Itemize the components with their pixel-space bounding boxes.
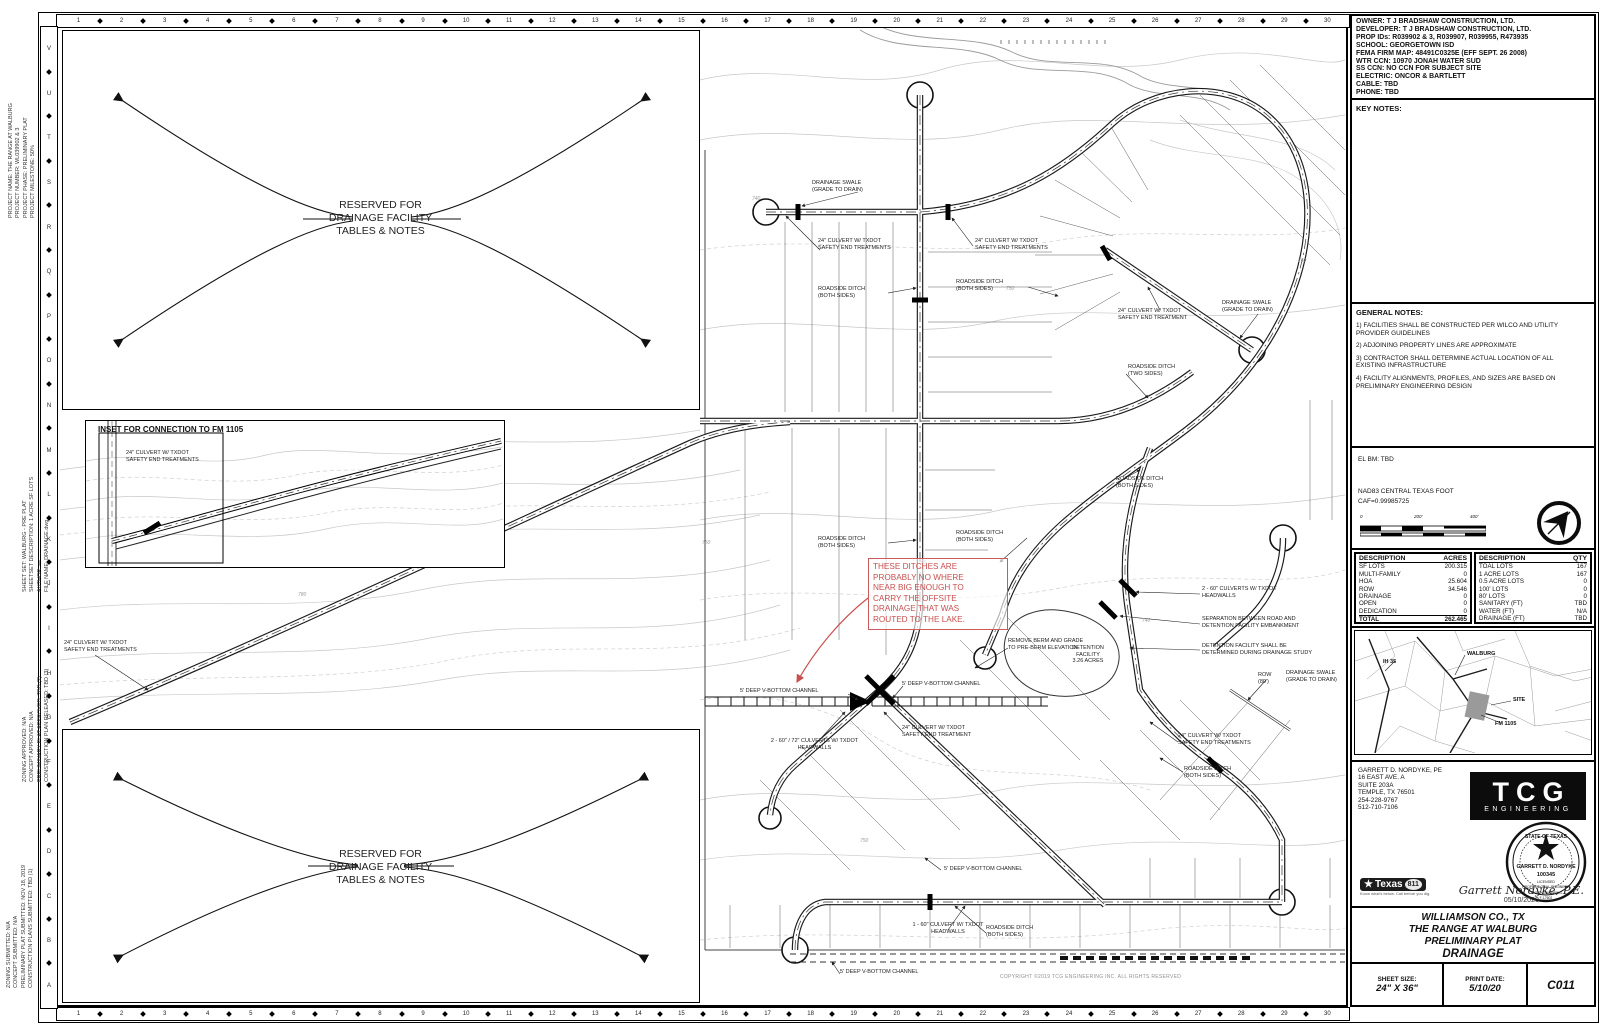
grid-number: 29 [1263,15,1306,27]
firm-logo-text: TCG [1486,779,1571,805]
scale-tick-400: 400' [1470,514,1478,519]
owner-info-line: WTR CCN: 10970 JONAH WATER SUD [1356,58,1590,66]
project-title-line: DRAINAGE [1352,948,1594,960]
table-row: DRAINAGE0 [1359,593,1467,600]
title-block-footer: SHEET SIZE: 24" X 36" PRINT DATE: 5/10/2… [1352,964,1594,1005]
margin-note-line: SHEET SET: WALBURG - PRE PLAT [22,442,29,592]
grid-number: 15 [660,1008,703,1020]
table-row: DEDICATION0 [1359,608,1467,615]
grid-letter: S [41,161,57,206]
inset-title: INSET FOR CONNECTION TO FM 1105 [98,425,243,434]
table-row: MULTI-FAMILY0 [1359,571,1467,578]
grid-number: 27 [1177,15,1220,27]
grid-letter: B [41,919,57,964]
table-row: ROW34.546 [1359,586,1467,593]
margin-note-line: FILE NAME: DRAINAGE.dwg [44,442,51,592]
margin-note-line: PROJECT PHASE: PRELIMINARY PLAT [23,28,30,218]
general-notes-list: 1) FACILITIES SHALL BE CONSTRUCTED PER W… [1356,322,1590,390]
drawing-sheet: 1234567891011121314151617181920212223242… [0,0,1600,1033]
engineer-contact-line: 16 EAST AVE. A [1358,774,1442,781]
grid-number: 4 [186,1008,229,1020]
project-title-line: THE RANGE AT WALBURG [1352,924,1594,936]
engineer-contact-line: TEMPLE, TX 76501 [1358,789,1442,796]
engineer-contact-line: 254-228-9767 [1358,797,1442,804]
redline-comment: THESE DITCHES ARE PROBABLY NO WHERE NEAR… [868,558,1008,630]
grid-letter: V [41,27,57,72]
grid-number: 30 [1306,15,1349,27]
signature-name: Garrett Nordyke, P.E. [1459,883,1584,897]
grid-letter: Q [41,250,57,295]
owner-info-line: OWNER: T J BRADSHAW CONSTRUCTION, LTD. [1356,18,1590,26]
grid-letter: R [41,205,57,250]
grid-number: 13 [574,1008,617,1020]
grid-letter: N [41,384,57,429]
margin-project-info: PROJECT NAME: THE RANGE AT WALBURGPROJEC… [8,28,37,218]
engineer-contact-line: SUITE 203A [1358,782,1442,789]
qty-table-rows: TOAL LOTS1671 ACRE LOTS1670.5 ACRE LOTS0… [1479,563,1587,622]
inset-box: INSET FOR CONNECTION TO FM 1105 [85,420,505,568]
acres-table-rows: SF LOTS200.315MULTI-FAMILY0HOA25.604ROW3… [1359,563,1467,623]
summary-tables: DESCRIPTIONACRES SF LOTS200.315MULTI-FAM… [1352,550,1594,628]
benchmark-note: EL BM: TBD [1358,456,1394,463]
title-block: OWNER: T J BRADSHAW CONSTRUCTION, LTD.DE… [1350,14,1596,1007]
grid-number: 2 [100,1008,143,1020]
inset-linework [86,421,503,566]
acres-table: DESCRIPTIONACRES SF LOTS200.315MULTI-FAM… [1354,552,1472,624]
grid-number: 28 [1220,15,1263,27]
margin-note-line: PROJECT NAME: THE RANGE AT WALBURG [8,28,15,218]
north-arrow-icon [1536,500,1582,546]
general-note: 2) ADJOINING PROPERTY LINES ARE APPROXIM… [1356,342,1566,350]
grid-number: 24 [1047,15,1090,27]
owner-info-line: ELECTRIC: ONCOR & BARTLETT [1356,73,1590,81]
table-row: HOA25.604 [1359,578,1467,585]
table-row: WATER (FT)N/A [1479,608,1587,615]
grid-number: 20 [875,1008,918,1020]
margin-note-line: SHEETSET DESCRIPTION: 1 ACRE SF LOTS [29,442,36,592]
grid-number: 21 [918,1008,961,1020]
table-row: SF LOTS200.315 [1359,563,1467,570]
general-notes-title: GENERAL NOTES: [1356,308,1590,317]
firm-logo-subtext: ENGINEERING [1484,805,1572,814]
margin-note-line: ZONING SUBMITTED: N/A [6,833,13,988]
texas811-badge: ★Texas811 [1360,878,1426,891]
grid-number: 5 [229,15,272,27]
owner-info-line: PHONE: TBD [1356,89,1590,97]
margin-note-line: PROJECT NUMBER: WL039902 & 3 [15,28,22,218]
texas811-logo: ★Texas811 Know what's below. Call before… [1360,874,1430,897]
grid-number: 12 [531,15,574,27]
grid-number: 16 [703,1008,746,1020]
grid-number: 24 [1047,1008,1090,1020]
vicinity-map: IH 35WALBURGSITEFM 1105 [1354,630,1592,755]
sheet-number: C011 [1547,978,1575,992]
grid-number: 2 [100,15,143,27]
grid-strip-top: 1234567891011121314151617181920212223242… [56,14,1350,28]
general-note: 3) CONTRACTOR SHALL DETERMINE ACTUAL LOC… [1356,355,1566,370]
grid-number: 25 [1091,15,1134,27]
owner-info-line: FEMA FIRM MAP: 48491C0325E (EFF SEPT. 26… [1356,50,1590,58]
grid-number: 23 [1004,1008,1047,1020]
grid-number: 28 [1220,1008,1263,1020]
scale-bar [1360,524,1486,538]
reserved-note: RESERVED FOR DRAINAGE FACILITY TABLES & … [288,199,473,238]
grid-number: 18 [789,1008,832,1020]
vicinity-linework [1355,631,1592,753]
grid-number: 27 [1177,1008,1220,1020]
grid-number: 20 [875,15,918,27]
sheet-number-cell: C011 [1528,964,1594,1005]
grid-number: 14 [617,15,660,27]
owner-info-line: DEVELOPER: T J BRADSHAW CONSTRUCTION, LT… [1356,26,1590,34]
grid-number: 1 [57,15,100,27]
grid-letter: P [41,295,57,340]
grid-number: 17 [746,1008,789,1020]
general-notes-block: GENERAL NOTES: 1) FACILITIES SHALL BE CO… [1352,304,1594,448]
owner-info-line: SS CCN: NO CCN FOR SUBJECT SITE [1356,65,1590,73]
engineer-block: GARRETT D. NORDYKE, PE16 EAST AVE. ASUIT… [1352,762,1594,908]
grid-number: 22 [961,1008,1004,1020]
datum-block: EL BM: TBD NAD83 CENTRAL TEXAS FOOT CAF=… [1352,448,1594,550]
owner-info-block: OWNER: T J BRADSHAW CONSTRUCTION, LTD.DE… [1352,16,1594,100]
table-row: TOTAL262.465 [1359,615,1467,623]
grid-letter: A [41,963,57,1008]
grid-number: 10 [445,15,488,27]
signature-date: 05/10/2020 [1459,897,1584,904]
project-title-line: PRELIMINARY PLAT [1352,936,1594,948]
grid-letter: U [41,72,57,117]
grid-number: 19 [832,1008,875,1020]
grid-letter: D [41,830,57,875]
grid-number: 1 [57,1008,100,1020]
grid-letter: E [41,785,57,830]
vicinity-label: WALBURG [1467,651,1495,657]
grid-number: 10 [445,1008,488,1020]
table-row: OPEN0 [1359,600,1467,607]
margin-note-line: PRELIMINARY PLAT SUBMITTED: NOV 18, 2019 [21,833,28,988]
grid-number: 6 [272,15,315,27]
grid-letter: T [41,116,57,161]
datum-caf: CAF=0.99985725 [1358,498,1409,505]
key-notes-block: KEY NOTES: [1352,100,1594,304]
owner-info-line: PROP IDs: R039902 & 3, R039907, R039955,… [1356,34,1590,42]
margin-note-line: ZONING APPROVED: N/A [22,642,29,782]
grid-number: 11 [488,1008,531,1020]
grid-number: 7 [315,1008,358,1020]
margin-note-line: CONCEPT APPROVED: N/A [29,642,36,782]
grid-number: 8 [358,1008,401,1020]
svg-text:100345: 100345 [1537,872,1555,878]
table-row: 1 ACRE LOTS167 [1479,571,1587,578]
margin-note-line: PROJECT MILESTONE: 50% [30,28,37,218]
grid-number: 22 [961,15,1004,27]
grid-strip-bottom: 1234567891011121314151617181920212223242… [56,1007,1350,1021]
sheet-size-cell: SHEET SIZE: 24" X 36" [1352,964,1444,1005]
table-row: SANITARY (FT)TBD [1479,600,1587,607]
grid-number: 18 [789,15,832,27]
grid-number: 3 [143,15,186,27]
margin-approvals-info: ZONING APPROVED: N/ACONCEPT APPROVED: N/… [22,642,51,782]
table-row: DRAINAGE (FT)TBD [1479,615,1587,622]
general-note: 4) FACILITY ALIGNMENTS, PROFILES, AND SI… [1356,375,1566,390]
grid-number: 13 [574,15,617,27]
svg-text:GARRETT D. NORDYKE: GARRETT D. NORDYKE [1516,864,1576,870]
owner-info-line: CABLE: TBD [1356,81,1590,89]
grid-number: 15 [660,15,703,27]
margin-note-line: CONSTRUCTION PLAN RELEASED: TBD (3) [44,642,51,782]
vicinity-label: IH 35 [1383,659,1396,665]
grid-number: 7 [315,15,358,27]
grid-number: 14 [617,1008,660,1020]
engineer-signature: Garrett Nordyke, P.E. 05/10/2020 [1459,883,1584,904]
star-icon: ★ [1364,879,1373,890]
reserved-note: RESERVED FOR DRAINAGE FACILITY TABLES & … [288,848,473,887]
engineer-contact-line: GARRETT D. NORDYKE, PE [1358,767,1442,774]
grid-number: 16 [703,15,746,27]
margin-sheetset-info: SHEET SET: WALBURG - PRE PLATSHEETSET DE… [22,442,51,592]
grid-number: 5 [229,1008,272,1020]
grid-letter: C [41,874,57,919]
datum-line: NAD83 CENTRAL TEXAS FOOT [1358,488,1454,495]
margin-note-line: PRELIMINARY PLAT APPROVED: TBD (2) [37,642,44,782]
grid-number: 11 [488,15,531,27]
vicinity-label: SITE [1513,697,1525,703]
svg-text:STATE OF TEXAS: STATE OF TEXAS [1525,834,1568,840]
grid-number: 3 [143,1008,186,1020]
vicinity-map-block: IH 35WALBURGSITEFM 1105 [1352,628,1594,762]
firm-logo: TCG ENGINEERING [1470,772,1586,820]
margin-note-line: CONCEPT SUBMITTED: N/A [13,833,20,988]
engineer-contact: GARRETT D. NORDYKE, PE16 EAST AVE. ASUIT… [1358,767,1442,811]
project-title-block: WILLIAMSON CO., TXTHE RANGE AT WALBURGPR… [1352,908,1594,964]
grid-number: 23 [1004,15,1047,27]
vicinity-label: FM 1105 [1495,721,1516,727]
table-row: TOAL LOTS167 [1479,563,1587,570]
grid-number: 26 [1134,15,1177,27]
grid-number: 19 [832,15,875,27]
project-title-line: WILLIAMSON CO., TX [1352,912,1594,924]
qty-table-header: DESCRIPTIONQTY [1479,555,1587,563]
table-row: 80' LOTS0 [1479,593,1587,600]
engineer-contact-line: 512-710-7106 [1358,804,1442,811]
margin-note-line: AUTHOR: — [37,442,44,592]
grid-letter: O [41,339,57,384]
reserved-box-bottom: RESERVED FOR DRAINAGE FACILITY TABLES & … [62,729,700,1003]
grid-number: 9 [402,15,445,27]
grid-number: 8 [358,15,401,27]
grid-number: 6 [272,1008,315,1020]
print-date-cell: PRINT DATE: 5/10/20 [1444,964,1528,1005]
general-note: 1) FACILITIES SHALL BE CONSTRUCTED PER W… [1356,322,1566,337]
grid-number: 29 [1263,1008,1306,1020]
grid-number: 26 [1134,1008,1177,1020]
grid-number: 4 [186,15,229,27]
grid-number: 9 [402,1008,445,1020]
scale-tick-0: 0 [1360,514,1363,519]
grid-number: 25 [1091,1008,1134,1020]
texas811-tagline: Know what's below. Call before you dig. [1360,892,1430,897]
key-notes-title: KEY NOTES: [1356,104,1590,113]
reserved-box-top: RESERVED FOR DRAINAGE FACILITY TABLES & … [62,30,700,410]
grid-number: 17 [746,15,789,27]
qty-table: DESCRIPTIONQTY TOAL LOTS1671 ACRE LOTS16… [1474,552,1592,624]
margin-submittals-info: ZONING SUBMITTED: N/ACONCEPT SUBMITTED: … [6,833,35,988]
grid-number: 30 [1306,1008,1349,1020]
grid-number: 21 [918,15,961,27]
owner-info-line: SCHOOL: GEORGETOWN ISD [1356,42,1590,50]
scale-tick-200: 200' [1414,514,1422,519]
table-row: 0.5 ACRE LOTS0 [1479,578,1587,585]
grid-number: 12 [531,1008,574,1020]
table-row: 100' LOTS0 [1479,586,1587,593]
margin-note-line: CONSTRUCTION PLANS SUBMITTED: TBD (1) [28,833,35,988]
acres-table-header: DESCRIPTIONACRES [1359,555,1467,563]
